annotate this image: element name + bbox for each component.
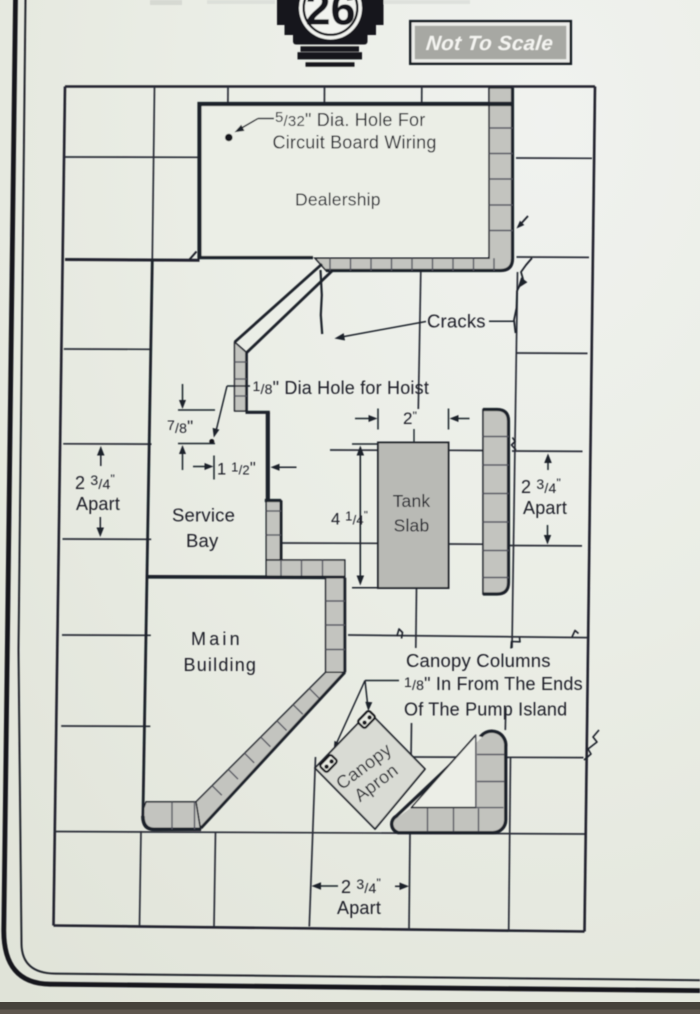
svg-text:Main: Main [191,629,243,649]
svg-text:Building: Building [184,655,258,675]
svg-text:5/32" Dia. Hole For: 5/32" Dia. Hole For [275,109,425,130]
svg-text:Apart: Apart [76,494,120,514]
svg-text:Service: Service [172,505,235,526]
svg-text:Slab: Slab [394,516,430,536]
svg-text:26: 26 [305,0,355,35]
svg-text:Apart: Apart [523,498,567,518]
svg-text:Dealership: Dealership [295,190,381,210]
svg-text:1/8" Dia Hole for Hoist: 1/8" Dia Hole for Hoist [253,378,430,398]
svg-text:Circuit Board Wiring: Circuit Board Wiring [273,133,437,153]
svg-text:Of The Pump Island: Of The Pump Island [404,700,567,720]
svg-text:Canopy Columns: Canopy Columns [406,650,551,671]
svg-text:Apart: Apart [337,898,381,918]
svg-text:Tank: Tank [393,491,431,511]
svg-text:Not To Scale: Not To Scale [425,32,554,55]
svg-text:Cracks: Cracks [427,311,486,332]
svg-text:1/8" In From The Ends: 1/8" In From The Ends [404,674,583,694]
svg-text:Bay: Bay [186,530,219,551]
